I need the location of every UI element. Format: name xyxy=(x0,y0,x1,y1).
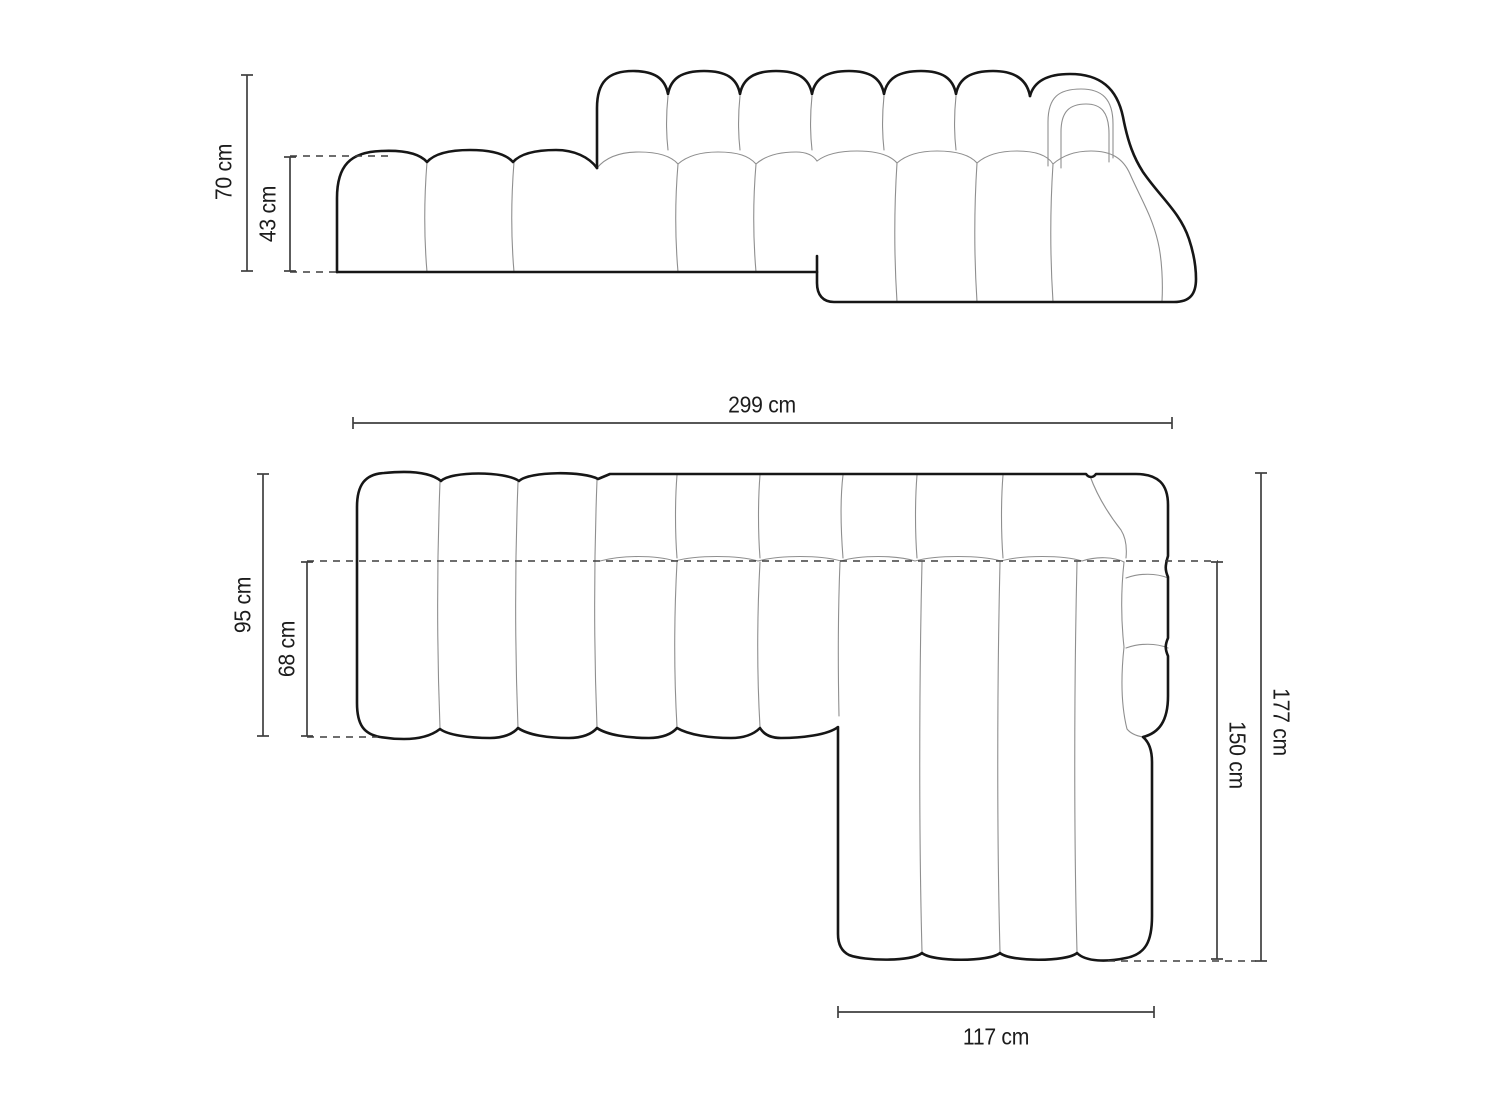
dimension-diagram: 70 cm 43 cm 299 cm 95 cm 68 cm 177 cm 15… xyxy=(0,0,1487,1115)
front-view-drawing xyxy=(337,71,1196,302)
top-chaise-length-label: 150 cm xyxy=(1224,721,1251,789)
top-seat-depth-label: 68 cm xyxy=(274,621,301,677)
top-side-depth-label: 95 cm xyxy=(230,577,257,633)
front-seat-height-label: 43 cm xyxy=(255,186,282,242)
front-total-height-label: 70 cm xyxy=(211,144,238,200)
top-view-drawing xyxy=(357,472,1168,961)
top-total-width-label: 299 cm xyxy=(728,392,796,419)
top-total-depth-label: 177 cm xyxy=(1268,688,1295,756)
top-chaise-width-label: 117 cm xyxy=(963,1024,1029,1051)
